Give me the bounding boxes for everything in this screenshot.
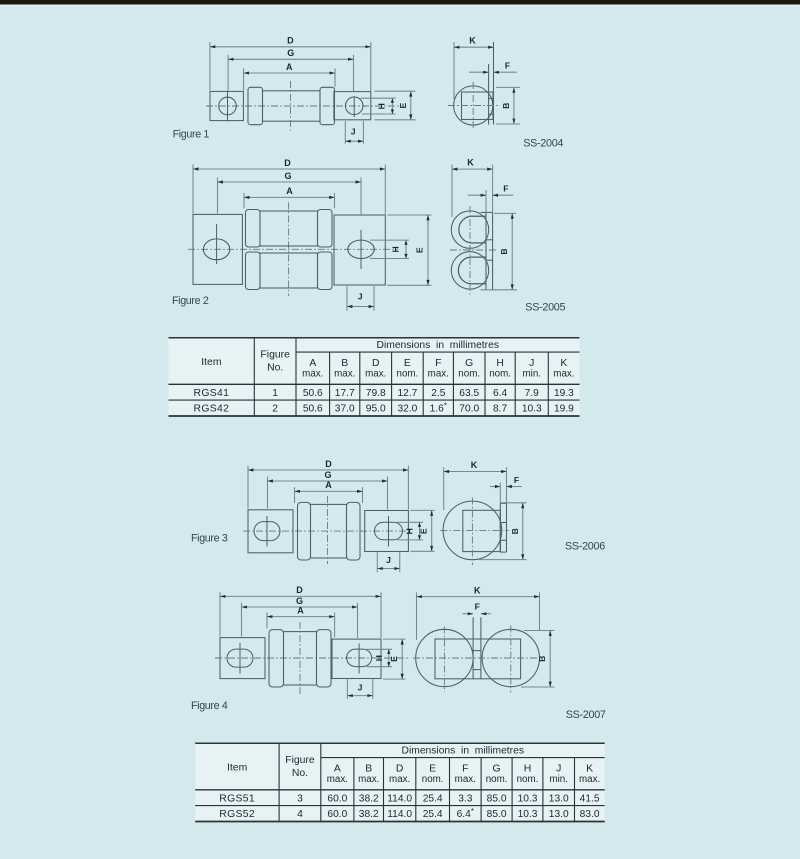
svg-text:max.: max. [365, 369, 386, 380]
svg-text:E: E [415, 247, 425, 253]
svg-text:32.0: 32.0 [397, 404, 417, 415]
svg-text:nom.: nom. [422, 774, 444, 785]
svg-text:nom.: nom. [489, 369, 511, 380]
svg-text:19.3: 19.3 [554, 388, 574, 399]
svg-text:A: A [309, 358, 316, 369]
svg-text:D: D [372, 358, 380, 369]
svg-text:E: E [398, 102, 408, 108]
svg-text:SS-2005: SS-2005 [525, 302, 565, 314]
svg-text:B: B [365, 763, 372, 774]
svg-text:Figure: Figure [285, 755, 315, 766]
svg-text:J: J [358, 291, 363, 301]
svg-text:min.: min. [549, 774, 568, 785]
svg-text:nom.: nom. [397, 369, 419, 380]
svg-text:H: H [374, 655, 384, 661]
svg-text:Figure 3: Figure 3 [191, 532, 228, 544]
svg-text:19.9: 19.9 [554, 404, 574, 415]
svg-text:F: F [475, 602, 480, 612]
svg-text:H: H [391, 246, 401, 252]
svg-text:A: A [325, 480, 332, 490]
svg-text:A: A [286, 186, 293, 196]
svg-text:38.2: 38.2 [359, 809, 379, 820]
svg-text:min.: min. [522, 369, 541, 380]
svg-text:70.0: 70.0 [459, 404, 479, 415]
svg-text:max.: max. [455, 774, 476, 785]
svg-text:K: K [474, 585, 481, 595]
svg-text:37.0: 37.0 [335, 404, 355, 415]
svg-text:41.5: 41.5 [580, 793, 600, 804]
svg-text:RGS52: RGS52 [219, 809, 255, 820]
svg-text:8.7: 8.7 [493, 404, 507, 415]
svg-text:D: D [284, 158, 291, 168]
svg-text:Figure 4: Figure 4 [191, 700, 228, 712]
svg-text:D: D [287, 36, 294, 46]
svg-text:H: H [496, 358, 504, 369]
svg-text:K: K [467, 158, 474, 168]
svg-text:6.4: 6.4 [493, 388, 507, 399]
svg-text:60.0: 60.0 [327, 809, 347, 820]
svg-text:25.4: 25.4 [423, 809, 443, 820]
svg-text:H: H [524, 763, 532, 774]
svg-text:10.3: 10.3 [518, 793, 538, 804]
svg-text:SS-2007: SS-2007 [566, 709, 606, 721]
svg-text:12.7: 12.7 [397, 388, 417, 399]
svg-text:max.: max. [334, 369, 355, 380]
svg-text:D: D [325, 459, 332, 469]
svg-text:A: A [297, 605, 304, 615]
svg-text:max.: max. [579, 774, 600, 785]
svg-text:J: J [556, 763, 561, 774]
svg-text:85.0: 85.0 [487, 809, 507, 820]
svg-text:63.5: 63.5 [459, 388, 479, 399]
svg-text:85.0: 85.0 [487, 793, 507, 804]
svg-text:max.: max. [389, 774, 410, 785]
svg-text:3: 3 [297, 793, 303, 804]
svg-text:F: F [514, 475, 519, 485]
svg-text:E: E [404, 358, 411, 369]
svg-text:F: F [435, 358, 441, 369]
svg-text:F: F [462, 763, 468, 774]
svg-text:D: D [396, 763, 404, 774]
svg-text:B: B [510, 528, 520, 534]
svg-text:13.0: 13.0 [549, 809, 569, 820]
svg-text:13.0: 13.0 [549, 793, 569, 804]
svg-text:B: B [537, 656, 547, 662]
svg-text:K: K [586, 763, 593, 774]
svg-text:G: G [324, 470, 331, 480]
svg-text:No.: No. [267, 362, 283, 373]
svg-text:50.6: 50.6 [303, 404, 323, 415]
svg-text:Dimensions in millimetres: Dimensions in millimetres [402, 746, 524, 757]
svg-text:2.5: 2.5 [431, 388, 445, 399]
svg-text:J: J [386, 555, 391, 565]
svg-text:max.: max. [302, 369, 323, 380]
svg-text:No.: No. [292, 768, 308, 779]
svg-text:Item: Item [227, 763, 247, 774]
svg-text:nom.: nom. [458, 369, 480, 380]
svg-text:B: B [341, 358, 348, 369]
svg-text:F: F [505, 60, 510, 70]
svg-text:60.0: 60.0 [327, 793, 347, 804]
svg-text:Figure 1: Figure 1 [173, 128, 210, 140]
svg-text:A: A [286, 62, 293, 72]
svg-text:G: G [493, 763, 501, 774]
svg-text:max.: max. [553, 369, 574, 380]
svg-text:H: H [376, 103, 386, 109]
svg-text:RGS42: RGS42 [193, 404, 229, 415]
svg-text:nom.: nom. [517, 774, 539, 785]
svg-text:RGS41: RGS41 [193, 388, 229, 399]
svg-text:G: G [296, 596, 303, 606]
svg-text:95.0: 95.0 [366, 404, 386, 415]
svg-text:max.: max. [327, 774, 348, 785]
svg-text:RGS51: RGS51 [219, 793, 255, 804]
svg-text:K: K [560, 358, 567, 369]
svg-text:25.4: 25.4 [423, 793, 443, 804]
svg-text:J: J [358, 683, 363, 693]
svg-text:E: E [429, 763, 436, 774]
svg-text:H: H [404, 528, 414, 534]
svg-text:E: E [389, 656, 399, 662]
svg-text:10.3: 10.3 [522, 404, 542, 415]
svg-text:D: D [296, 585, 303, 595]
svg-text:Dimensions in millimetres: Dimensions in millimetres [377, 340, 499, 351]
svg-text:3.3: 3.3 [458, 793, 472, 804]
svg-text:G: G [284, 171, 291, 181]
svg-text:SS-2004: SS-2004 [523, 138, 563, 150]
svg-text:4: 4 [297, 809, 303, 820]
svg-text:max.: max. [428, 369, 449, 380]
svg-text:J: J [529, 358, 534, 369]
svg-text:17.7: 17.7 [335, 388, 355, 399]
svg-text:79.8: 79.8 [366, 388, 386, 399]
svg-text:E: E [418, 528, 428, 534]
svg-text:A: A [334, 763, 341, 774]
svg-text:83.0: 83.0 [580, 809, 600, 820]
svg-text:7.9: 7.9 [525, 388, 539, 399]
svg-text:B: B [499, 248, 509, 254]
svg-text:Item: Item [201, 357, 221, 368]
svg-text:38.2: 38.2 [359, 793, 379, 804]
svg-text:J: J [351, 127, 356, 137]
svg-text:K: K [471, 460, 478, 470]
svg-text:10.3: 10.3 [518, 809, 538, 820]
svg-text:Figure 2: Figure 2 [172, 295, 209, 307]
svg-text:G: G [465, 358, 473, 369]
svg-text:114.0: 114.0 [387, 809, 412, 820]
svg-text:Figure: Figure [260, 350, 290, 361]
svg-text:1: 1 [272, 388, 278, 399]
svg-text:K: K [469, 36, 476, 46]
svg-text:SS-2006: SS-2006 [565, 541, 605, 553]
svg-text:F: F [503, 183, 508, 193]
svg-text:G: G [287, 48, 294, 58]
svg-text:114.0: 114.0 [387, 793, 412, 804]
svg-text:max.: max. [358, 774, 379, 785]
svg-text:50.6: 50.6 [303, 388, 323, 399]
svg-text:2: 2 [272, 404, 278, 415]
svg-text:B: B [501, 103, 511, 109]
svg-text:nom.: nom. [486, 774, 508, 785]
